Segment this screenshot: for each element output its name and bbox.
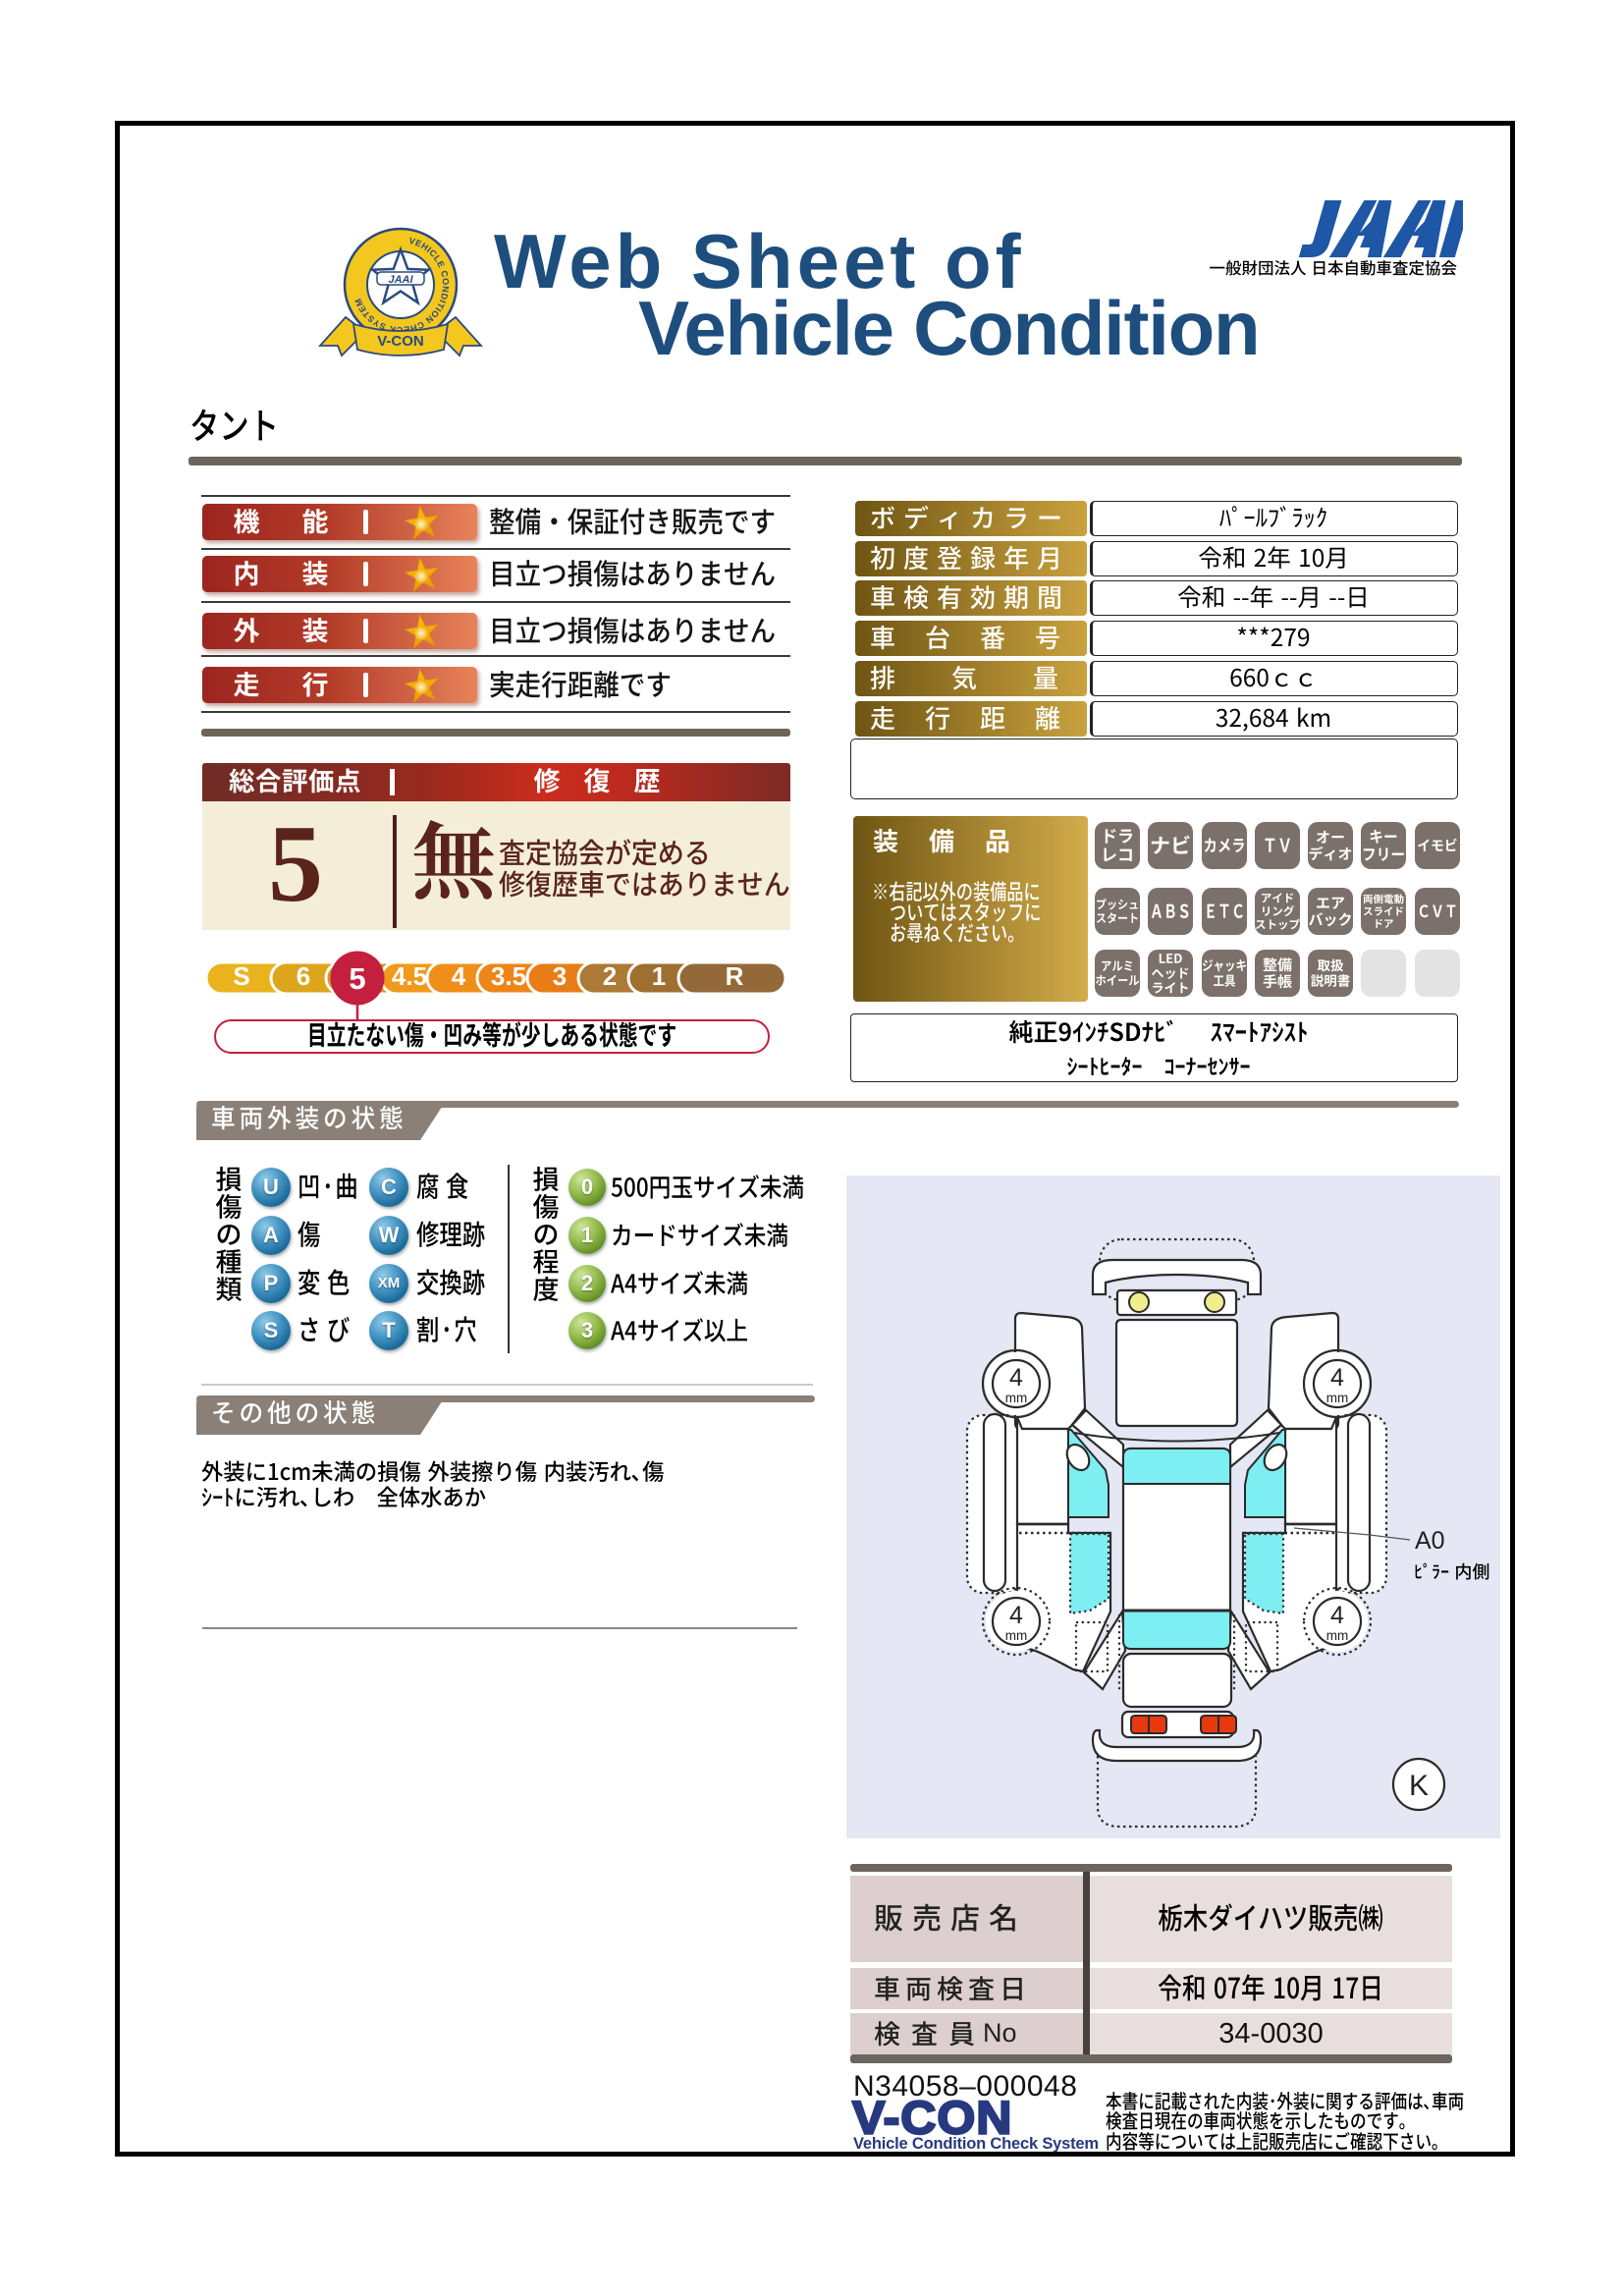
svg-text:mm: mm [1326,1391,1349,1405]
svg-text:mm: mm [1005,1628,1028,1643]
svg-text:4: 4 [1009,1602,1023,1629]
svg-text:6: 6 [297,961,310,991]
svg-text:K: K [1409,1770,1429,1802]
svg-text:4.5: 4.5 [392,961,427,991]
svg-text:4: 4 [1330,1602,1344,1629]
svg-text:5: 5 [349,961,365,996]
svg-text:3.5: 3.5 [491,961,526,991]
svg-text:3: 3 [553,961,567,991]
svg-text:V-CON: V-CON [377,333,424,350]
svg-text:1: 1 [652,961,666,991]
svg-text:mm: mm [1005,1391,1028,1405]
svg-text:4: 4 [1330,1364,1344,1392]
svg-text:R: R [726,961,744,991]
svg-text:2: 2 [603,961,617,991]
svg-text:4: 4 [452,961,466,991]
svg-text:JAAI: JAAI [388,274,413,286]
svg-text:S: S [233,961,249,991]
svg-text:4: 4 [1009,1364,1023,1392]
svg-text:A0: A0 [1415,1527,1445,1555]
svg-text:mm: mm [1326,1628,1349,1643]
